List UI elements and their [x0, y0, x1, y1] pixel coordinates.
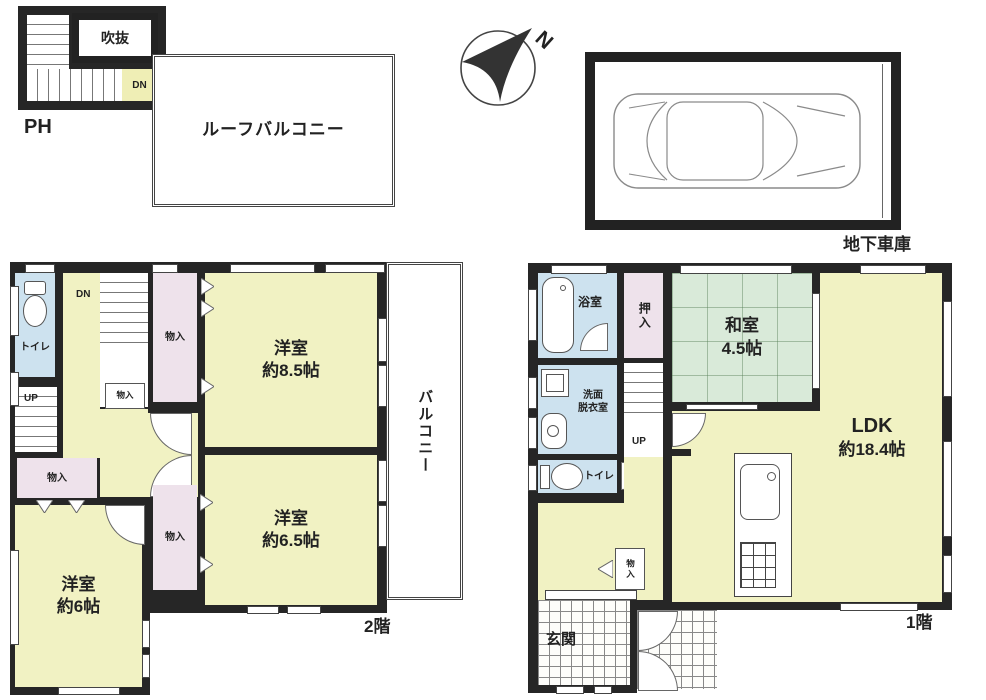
f1-washroom-label-2: 脱衣室	[570, 402, 616, 415]
closet-door-triangle-left	[598, 560, 613, 578]
window	[152, 264, 178, 273]
sink-basin-icon	[546, 374, 564, 392]
window	[860, 265, 926, 274]
closet-door-triangle	[201, 278, 214, 295]
closet-door-triangle	[201, 378, 214, 395]
f1-bath-label: 浴室	[578, 295, 602, 311]
car-icon	[609, 82, 867, 200]
ph-stairs	[27, 15, 69, 71]
window	[58, 687, 120, 695]
f1-entry-closet-label: 物入	[624, 559, 635, 580]
f1-genkan-label: 玄関	[546, 630, 576, 650]
f1-ldk-size: 約18.4帖	[792, 439, 952, 461]
window	[247, 606, 279, 614]
window	[551, 265, 607, 274]
roof-balcony: ルーフバルコニー	[152, 54, 395, 207]
faucet-icon	[767, 472, 776, 481]
f2-room-85-name: 洋室	[274, 338, 308, 360]
f1-washitsu-size: 4.5帖	[722, 338, 763, 360]
f1-washitsu-name: 和室	[725, 315, 759, 337]
ph-dn-label: DN	[132, 79, 146, 92]
f1-toilet-label: トイレ	[584, 470, 614, 483]
f1-kitchen-counter	[734, 453, 792, 597]
garage-label: 地下車庫	[843, 234, 911, 256]
window	[10, 286, 19, 336]
f1-washitsu-room: 和室 4.5帖	[672, 273, 812, 402]
f1-genkan: 玄関	[538, 600, 630, 685]
f1-toilet-room: トイレ	[538, 460, 617, 493]
window	[943, 441, 952, 537]
vanity-bowl-icon	[547, 425, 559, 437]
window	[594, 686, 612, 694]
floor-plan-sheet: 吹抜 DN PH ルーフバルコニー N 地下車庫	[0, 0, 986, 700]
f1-washroom: 洗面 脱衣室	[538, 365, 617, 454]
toilet-icon	[24, 281, 46, 295]
floor2-label: 2階	[364, 616, 390, 638]
ph-stairs-lower	[27, 69, 122, 101]
floor1-label: 1階	[906, 612, 932, 634]
closet-door-triangle-down	[36, 500, 53, 513]
window	[528, 289, 537, 341]
window	[528, 417, 537, 449]
closet-door-triangle	[201, 300, 214, 317]
stove-icon	[740, 542, 776, 588]
toilet-tank-icon	[540, 465, 550, 489]
f2-room-85: 洋室 約8.5帖	[205, 273, 377, 447]
penthouse-block: 吹抜 DN	[18, 6, 166, 110]
f2-dn-stairs	[100, 273, 148, 351]
floor2-plan: トイレ DN 物入 UP 物入 洋室 約6帖 物入 洋室 約8.5帖 物入	[10, 262, 387, 695]
window	[10, 372, 19, 406]
f2-room-65-size: 約6.5帖	[262, 530, 320, 552]
window	[528, 377, 537, 409]
f2-closet-mid: 物入	[153, 485, 197, 590]
f2-room-65: 洋室 約6.5帖	[205, 455, 377, 605]
f2-room-65-name: 洋室	[274, 508, 308, 530]
closet-door-triangle	[200, 556, 213, 573]
f2-balcony-label: バルコニー	[415, 389, 435, 474]
floor2-cutout	[150, 613, 387, 695]
closet-door-triangle	[200, 494, 213, 511]
window	[142, 620, 150, 648]
sliding-door	[686, 404, 758, 410]
f2-up-label: UP	[24, 392, 38, 405]
f2-room-6-name: 洋室	[62, 574, 96, 596]
window	[10, 550, 19, 645]
window	[943, 301, 952, 397]
f1-up-stairs: UP	[624, 363, 663, 457]
window	[680, 265, 792, 274]
bath-drain-icon	[560, 285, 566, 291]
window	[840, 603, 918, 611]
f2-closet-left: 物入	[17, 458, 97, 498]
f2-closet-left-label: 物入	[47, 472, 67, 485]
window	[325, 264, 385, 273]
f2-toilet-room: トイレ	[15, 273, 55, 377]
window	[556, 686, 584, 694]
window	[943, 555, 952, 593]
f2-closet-top-label: 物入	[165, 331, 185, 344]
f2-closet-small-label: 物入	[116, 390, 133, 401]
f1-hall-vertical	[624, 457, 663, 503]
f2-room-6-size: 約6帖	[57, 596, 100, 618]
f1-washroom-label-1: 洗面	[570, 389, 616, 402]
sliding-door	[812, 293, 820, 389]
f2-closet-small: 物入	[105, 383, 145, 409]
window	[528, 465, 537, 491]
f2-hall-lower	[100, 409, 148, 497]
f2-room-85-size: 約8.5帖	[262, 360, 320, 382]
f1-entry-closet: 物入	[615, 548, 645, 590]
window	[142, 654, 150, 678]
roof-balcony-label: ルーフバルコニー	[202, 119, 345, 141]
compass-north-label: N	[531, 27, 556, 54]
f2-toilet-label: トイレ	[15, 341, 55, 354]
compass-icon: N	[452, 14, 556, 114]
window	[25, 264, 55, 273]
toilet-bowl-icon	[551, 463, 583, 490]
floor1-plan: LDK 約18.4帖 和室 4.5帖 浴室 押入	[528, 263, 952, 693]
bathtub-icon	[542, 277, 574, 353]
ph-label: PH	[24, 114, 52, 140]
f2-closet-top: 物入	[153, 273, 197, 402]
f2-balcony: バルコニー	[386, 262, 463, 600]
garage-block	[585, 52, 901, 230]
void-label: 吹抜	[101, 29, 129, 47]
f2-closet-mid-label: 物入	[165, 531, 185, 544]
f1-oshiire-closet: 押入	[624, 273, 663, 358]
garage-inner-line	[882, 64, 883, 218]
f1-oshiire-label: 押入	[636, 302, 652, 330]
f1-up-label: UP	[632, 435, 646, 448]
genkan-step	[545, 590, 637, 600]
closet-door-triangle-down	[68, 500, 85, 513]
toilet-bowl-icon	[23, 295, 47, 327]
window	[287, 606, 321, 614]
void-room: 吹抜	[72, 13, 158, 63]
window	[230, 264, 315, 273]
f1-ldk-name: LDK	[792, 413, 952, 439]
f2-dn-label: DN	[76, 288, 90, 301]
